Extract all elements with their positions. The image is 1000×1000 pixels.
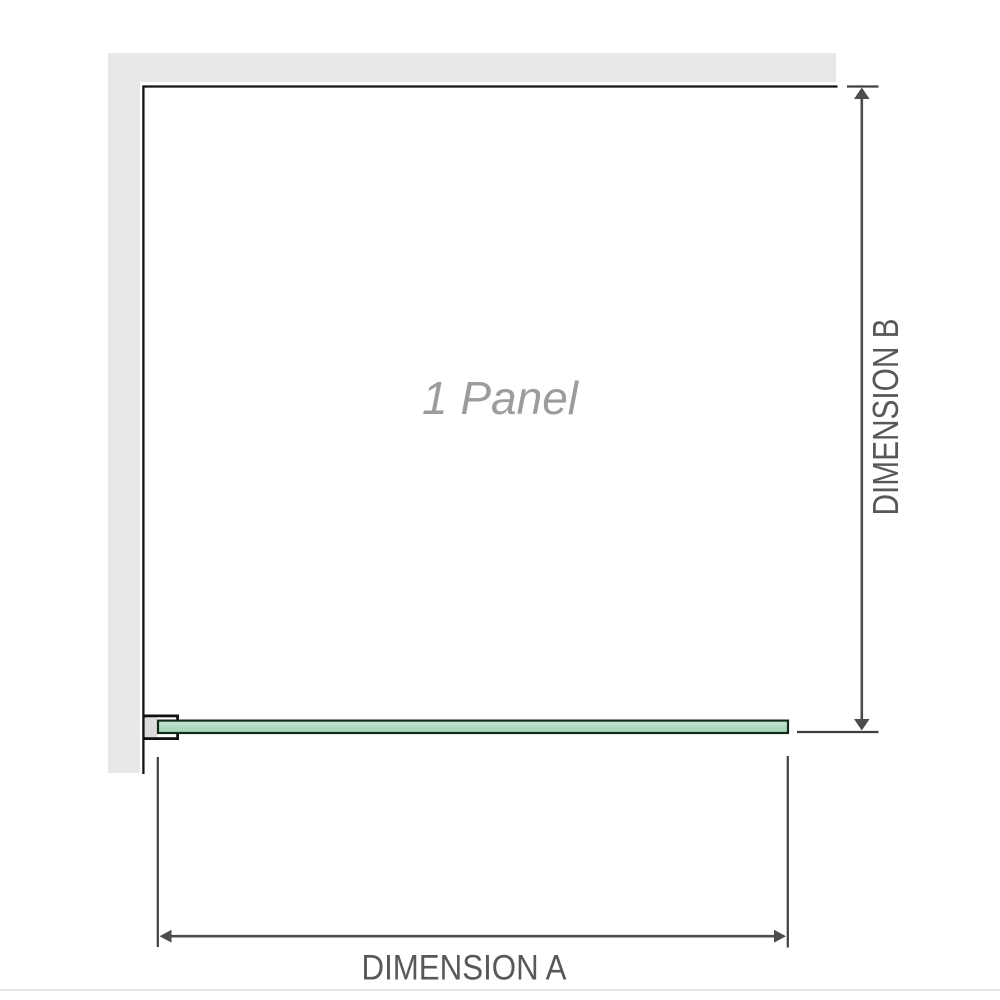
svg-text:1 Panel: 1 Panel [422, 372, 580, 424]
svg-text:DIMENSION B: DIMENSION B [865, 319, 906, 516]
svg-text:DIMENSION A: DIMENSION A [362, 949, 568, 988]
